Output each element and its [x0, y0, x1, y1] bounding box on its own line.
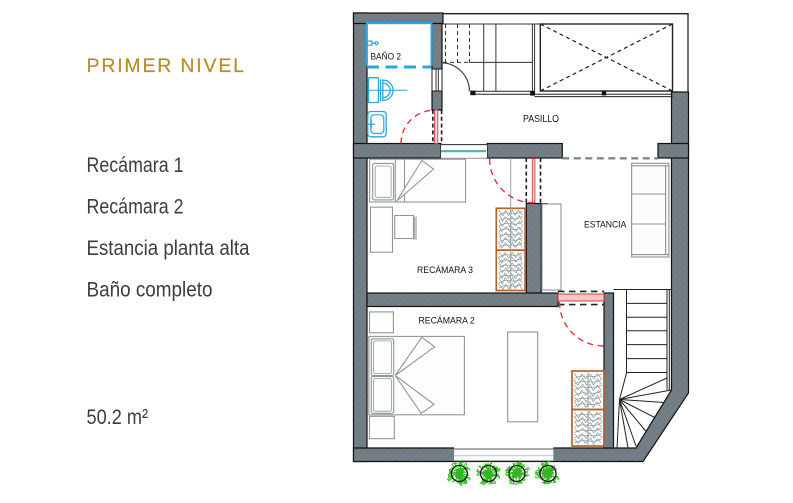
svg-text:RECÁMARA 3: RECÁMARA 3 — [417, 265, 473, 276]
svg-text:50.2 m²: 50.2 m² — [87, 405, 149, 429]
svg-text:Recámara 2: Recámara 2 — [87, 195, 184, 219]
svg-text:BAÑO 2: BAÑO 2 — [371, 52, 402, 62]
svg-text:PASILLO: PASILLO — [523, 114, 559, 125]
svg-text:Recámara 1: Recámara 1 — [87, 153, 184, 177]
svg-text:Baño completo: Baño completo — [87, 278, 213, 302]
svg-text:Estancia planta alta: Estancia planta alta — [87, 236, 250, 260]
svg-text:ESTANCIA: ESTANCIA — [584, 220, 627, 231]
svg-text:PRIMER NIVEL: PRIMER NIVEL — [87, 55, 245, 77]
svg-text:RECÁMARA 2: RECÁMARA 2 — [419, 315, 475, 326]
